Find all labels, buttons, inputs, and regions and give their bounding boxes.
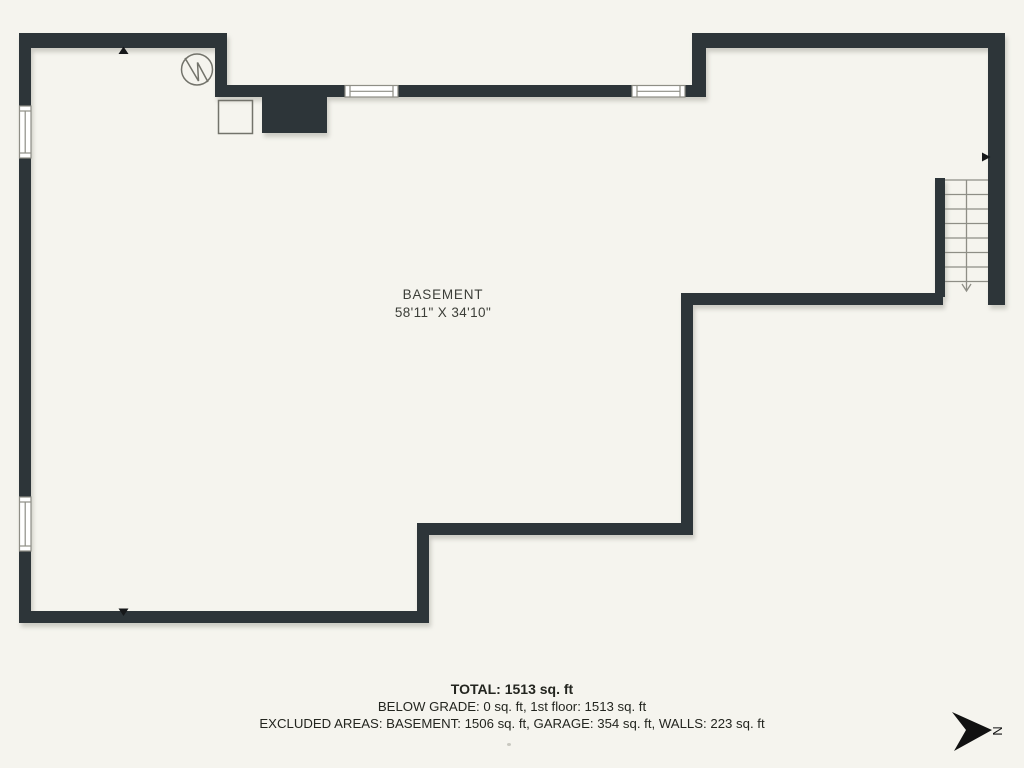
window-top-2 (632, 86, 685, 98)
attribution-dot (507, 743, 511, 746)
wall-mid-horizontal (417, 523, 693, 535)
wall-mid-vertical (681, 293, 693, 535)
wall-stairwell (935, 178, 945, 297)
wall-step-bottom (417, 523, 429, 623)
north-arrow: N (946, 706, 1008, 756)
room-dimensions-label: 58'11" X 34'10" (395, 305, 491, 320)
wall-bottom-right (683, 293, 943, 305)
summary-below-grade: BELOW GRADE: 0 sq. ft, 1st floor: 1513 s… (0, 698, 1024, 715)
chimney-block (262, 85, 327, 133)
stairs-direction-arrow (962, 180, 971, 291)
furnace-icon (182, 54, 213, 85)
north-arrow-label: N (990, 726, 1005, 735)
stairs (945, 180, 988, 291)
north-arrow-icon (952, 712, 992, 751)
utility-box-icon (219, 101, 253, 134)
walls (19, 33, 1005, 623)
window-top-1 (345, 86, 398, 98)
area-summary: TOTAL: 1513 sq. ft BELOW GRADE: 0 sq. ft… (0, 681, 1024, 732)
summary-total: TOTAL: 1513 sq. ft (0, 681, 1024, 698)
wall-top-right (692, 33, 1005, 48)
wall-bottom (19, 611, 429, 623)
basement-floorplan: BASEMENT 58'11" X 34'10" (0, 0, 1024, 768)
summary-excluded-areas: EXCLUDED AREAS: BASEMENT: 1506 sq. ft, G… (0, 715, 1024, 732)
floorplan-page: BASEMENT 58'11" X 34'10" TOTAL: 1513 sq.… (0, 0, 1024, 768)
room-name-label: BASEMENT (403, 287, 484, 302)
wall-right (988, 33, 1005, 305)
window-left-lower (20, 497, 32, 551)
window-left-upper (20, 106, 32, 158)
wall-top-left (19, 33, 227, 48)
